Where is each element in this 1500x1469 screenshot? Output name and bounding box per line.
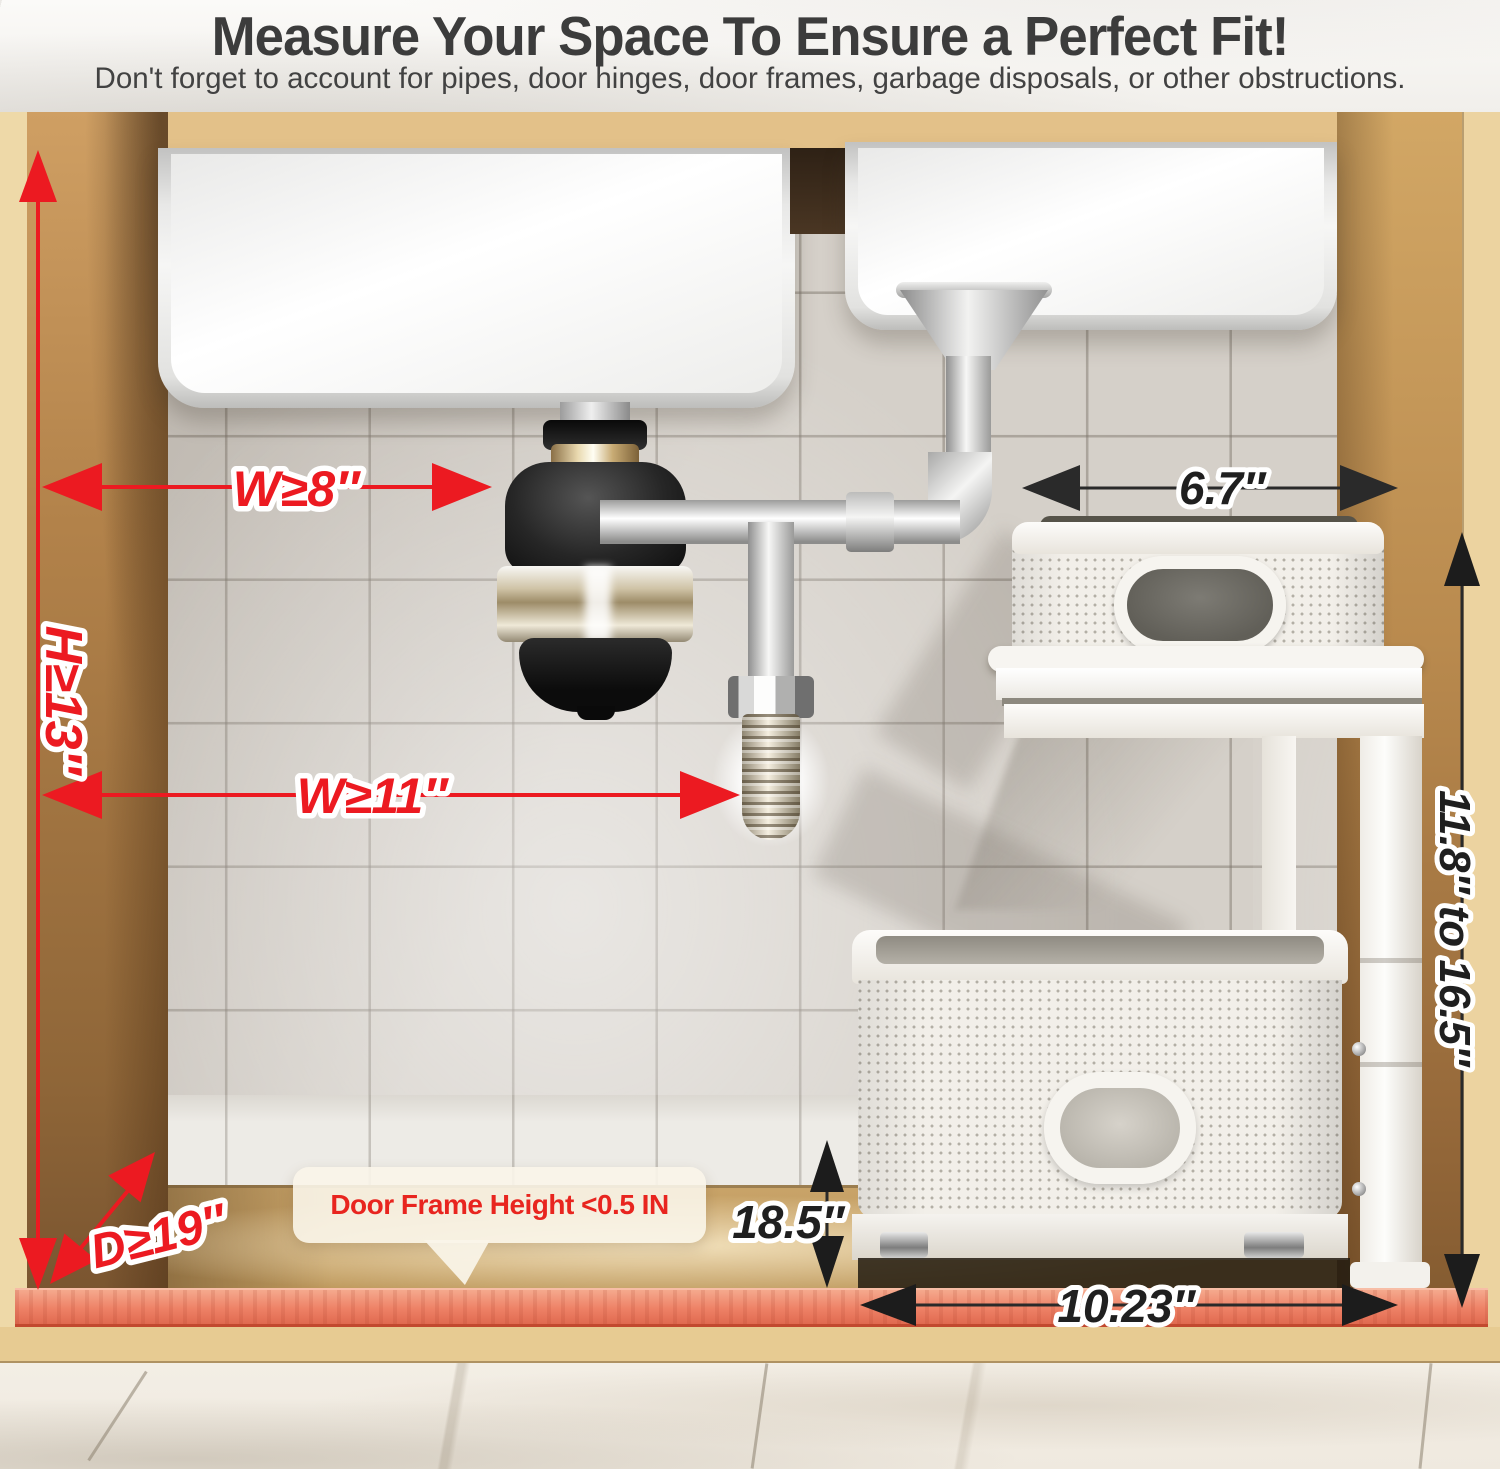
leg-telescope-joint [1360, 958, 1422, 963]
door-frame-highlight-strip [15, 1288, 1488, 1327]
organizer-leg-foot [1350, 1262, 1430, 1288]
shelf-frame-bar [1004, 704, 1424, 738]
drain-pipe-tailpiece [748, 522, 794, 682]
organizer-adjustable-leg [1360, 736, 1422, 1288]
top-basket-handle-window [1114, 556, 1286, 654]
cabinet-bottom-edge [0, 1327, 1500, 1363]
marble-floor [0, 1363, 1500, 1469]
garbage-disposal-outlet-tip [577, 706, 615, 720]
top-shelf-front-face [996, 668, 1422, 700]
pipe-coupling-nut [846, 492, 894, 552]
threaded-pipe-end [742, 714, 800, 840]
page-subtitle: Don't forget to account for pipes, door … [0, 62, 1500, 96]
cabinet-right-front-edge [1462, 112, 1500, 1360]
left-sink-basin [158, 148, 795, 408]
cabinet-left-inner-panel [27, 112, 168, 1292]
adjustment-screw [1352, 1042, 1366, 1056]
bottom-basket-opening [876, 936, 1324, 964]
page-title: Measure Your Space To Ensure a Perfect F… [30, 4, 1470, 68]
caster-wheel [880, 1232, 928, 1258]
leg-telescope-joint [1360, 1062, 1422, 1067]
bottom-basket-handle-window [1044, 1072, 1196, 1184]
chrome-highlight [585, 566, 611, 642]
door-frame-callout-text: Door Frame Height <0.5 IN [293, 1167, 706, 1243]
organizer-floor-shadow [858, 1258, 1350, 1288]
product-infographic: Measure Your Space To Ensure a Perfect F… [0, 0, 1500, 1469]
cabinet-left-front-edge [0, 112, 27, 1360]
adjustment-screw [1352, 1182, 1366, 1196]
between-sink-shadow [790, 148, 848, 234]
top-basket-rim [1012, 522, 1384, 554]
caster-wheel [1244, 1232, 1304, 1258]
